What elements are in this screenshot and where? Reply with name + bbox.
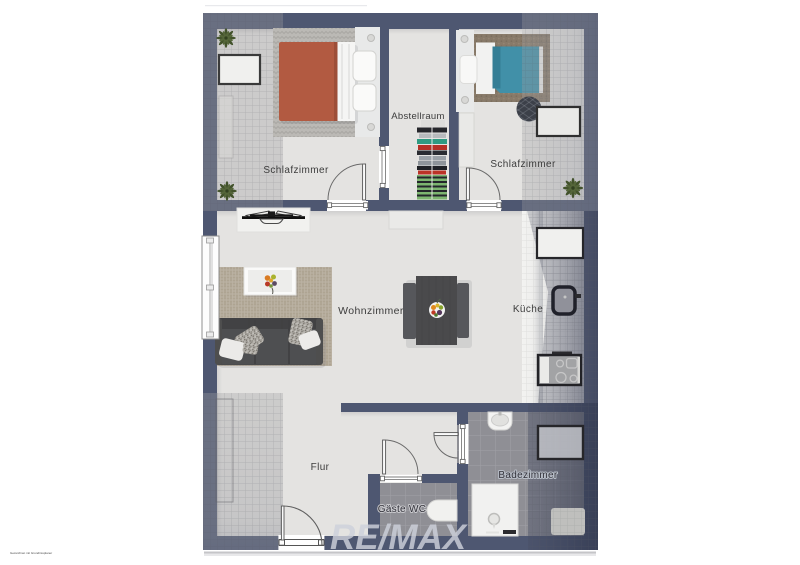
svg-text:Abstellraum: Abstellraum [391, 111, 444, 122]
svg-text:Gäste WC: Gäste WC [378, 504, 427, 515]
svg-text:RE/MAX: RE/MAX [330, 518, 469, 557]
svg-text:Schlafzimmer: Schlafzimmer [263, 165, 329, 176]
svg-text:Küche: Küche [513, 304, 543, 315]
svg-text:Wohnzimmer: Wohnzimmer [338, 305, 404, 317]
svg-text:Flur: Flur [311, 462, 330, 473]
svg-text:Badezimmer: Badezimmer [498, 470, 557, 481]
svg-text:Gezeichnet mit Grundrissplaner: Gezeichnet mit Grundrissplaner [10, 551, 52, 555]
svg-text:Schlafzimmer: Schlafzimmer [490, 159, 556, 170]
